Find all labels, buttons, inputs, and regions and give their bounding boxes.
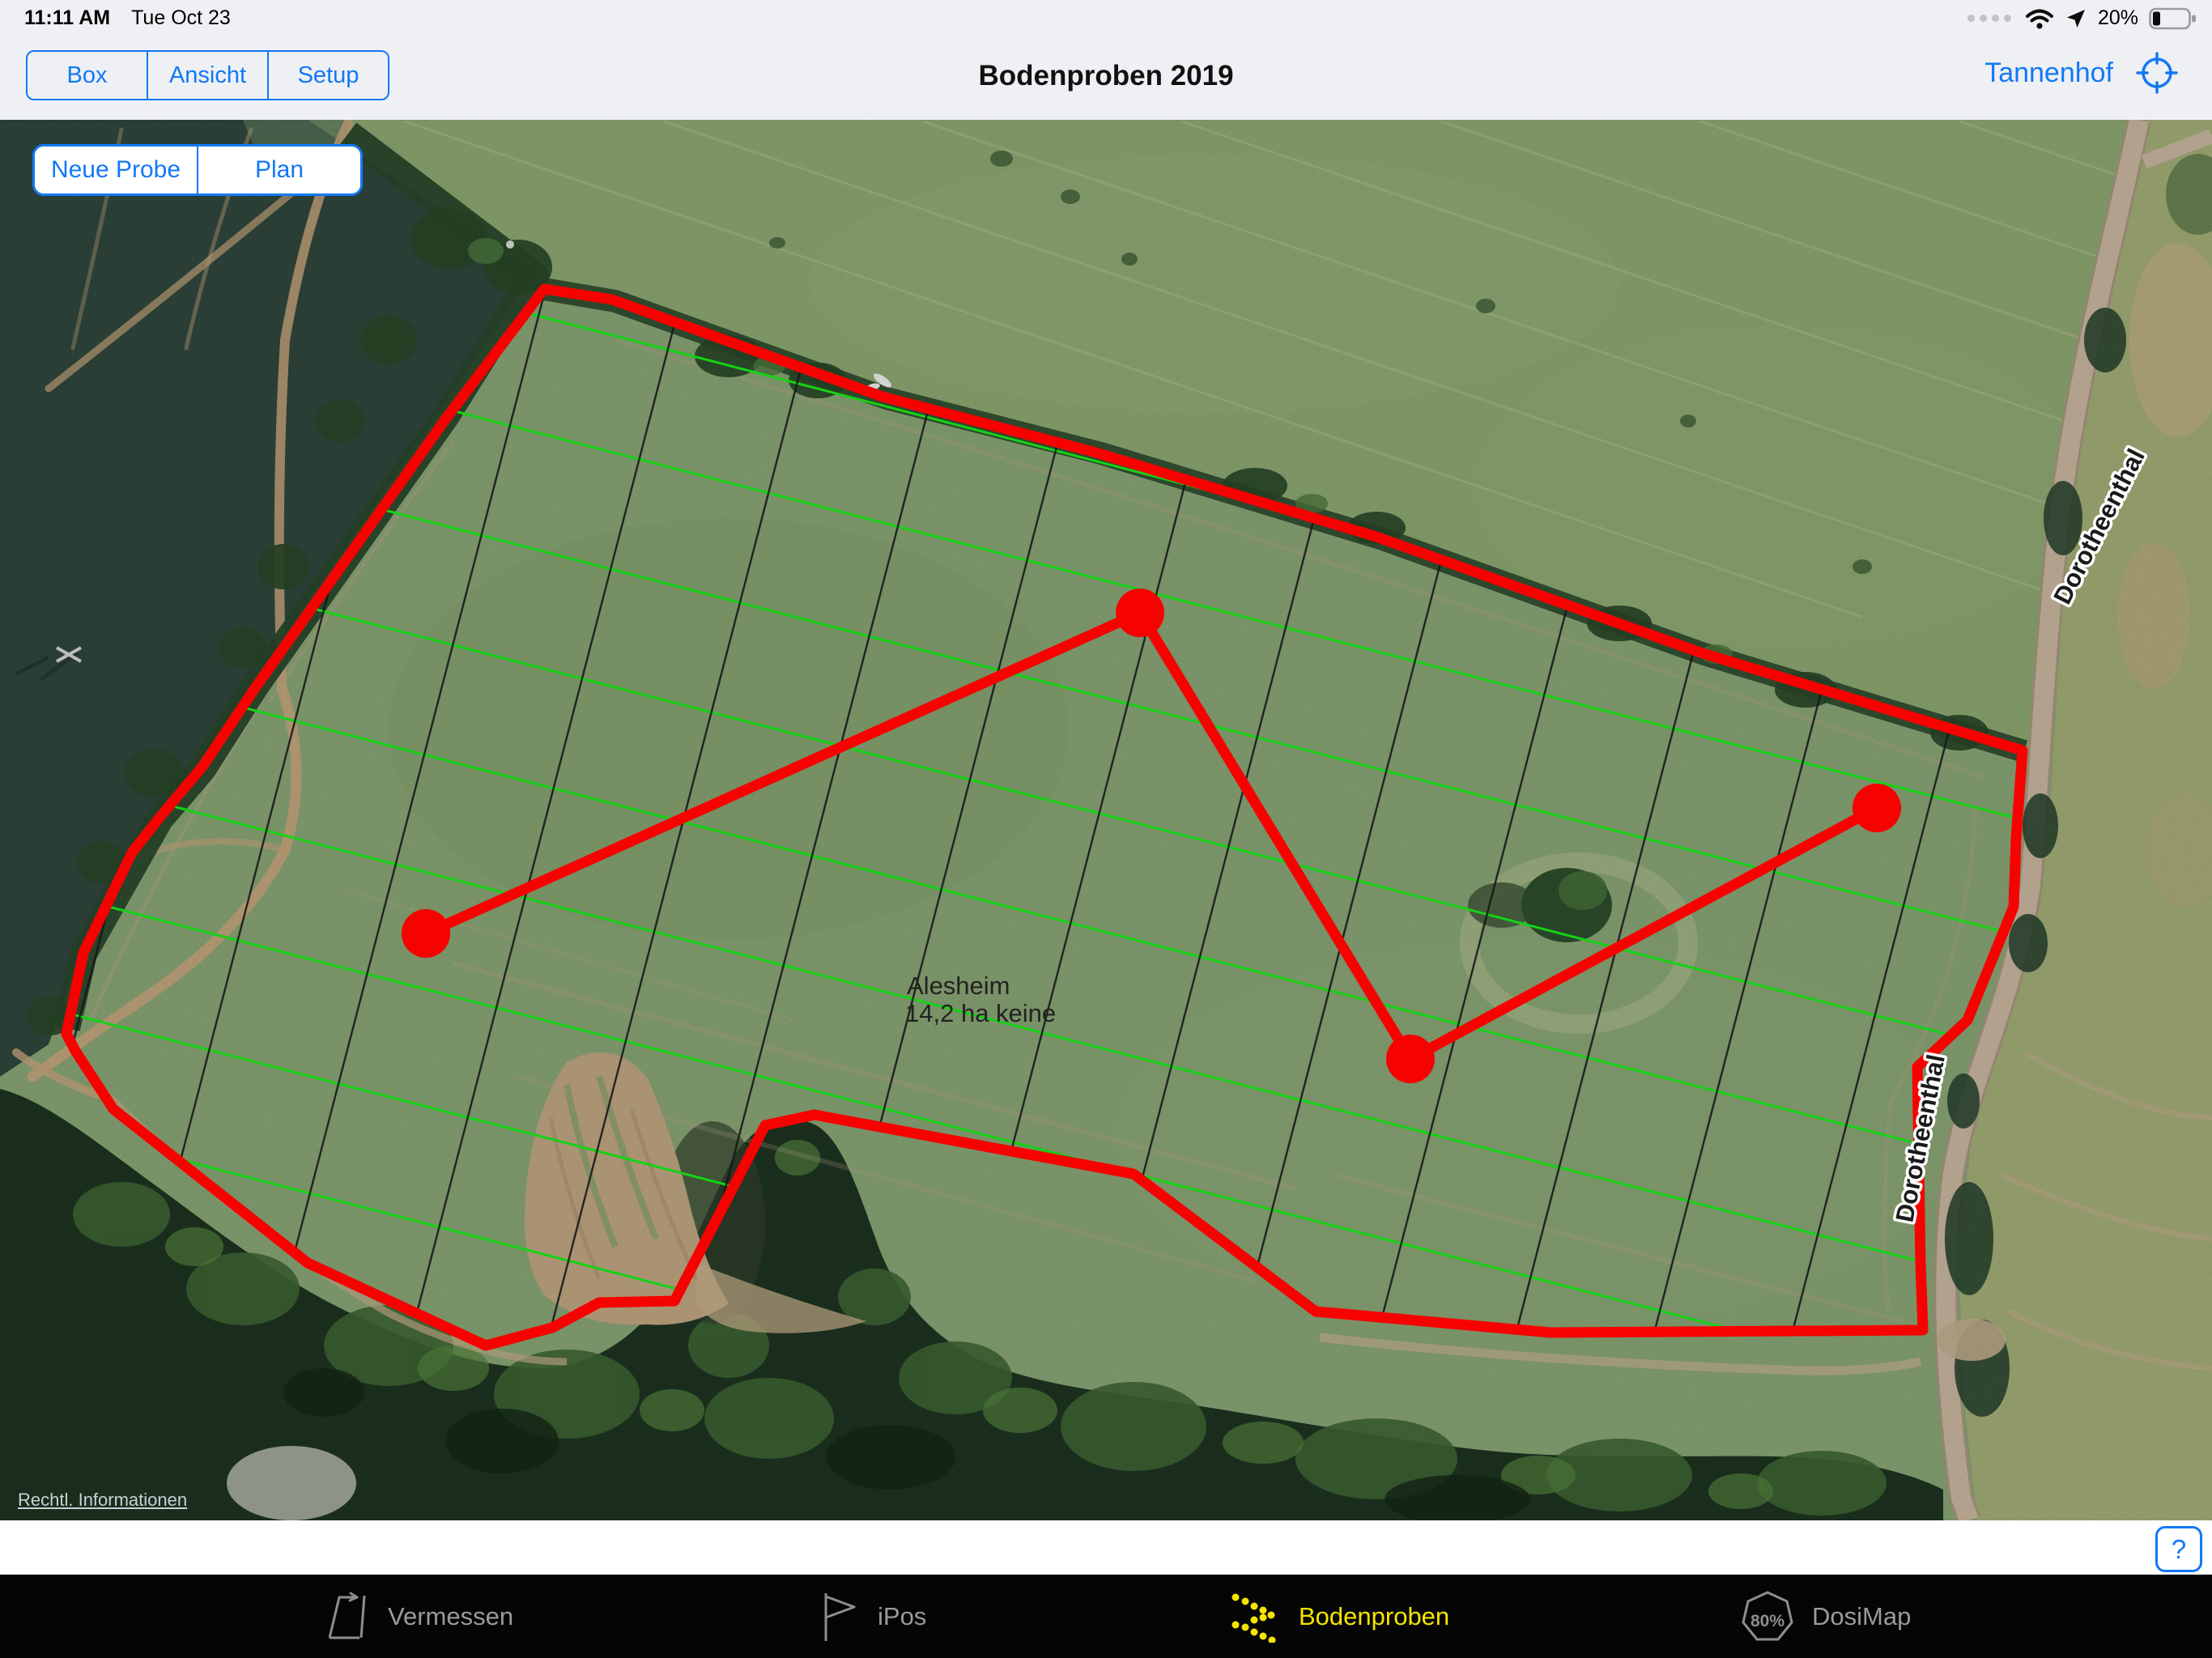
cellular-signal-icon [1967,15,2011,22]
crosshair-icon [2134,50,2180,96]
field-label-name: Alesheim [907,971,1010,1000]
header-segmented-control: Box Ansicht Setup [26,50,389,100]
measure-parallelogram-icon [321,1591,370,1643]
locate-me-button[interactable] [2134,50,2180,96]
setup-button[interactable]: Setup [267,52,388,99]
satellite-basemap: Alesheim 14,2 ha keine Dorotheenthal Dor… [0,120,2212,1520]
header-bar: 11:11 AM Tue Oct 23 20% Box Ansicht S [0,0,2212,120]
tab-label: Bodenproben [1299,1602,1449,1631]
header-right-group: Tannenhof [1984,49,2180,97]
bottom-strip [0,1520,2212,1575]
dosimap-heptagon-icon: 80% [1741,1590,1794,1643]
sample-point-marker[interactable] [1116,589,1164,637]
tab-bar: Vermessen iPos Bodenprobe [0,1575,2212,1658]
field-label-area: 14,2 ha keine [905,999,1056,1027]
battery-icon [2149,7,2197,30]
neue-probe-button[interactable]: Neue Probe [35,147,197,193]
soil-sample-dots-icon [1229,1591,1281,1643]
flag-icon [819,1590,860,1643]
battery-percent: 20% [2098,6,2138,30]
app-root: Alesheim 14,2 ha keine Dorotheenthal Dor… [0,0,2212,1658]
ansicht-button[interactable]: Ansicht [147,52,267,99]
sample-point-marker[interactable] [402,909,450,958]
sample-point-marker[interactable] [1853,784,1901,832]
tab-label: DosiMap [1812,1602,1911,1631]
status-date: Tue Oct 23 [131,6,231,30]
help-button[interactable]: ? [2155,1526,2202,1572]
location-arrow-icon [2065,7,2087,30]
status-bar-left: 11:11 AM Tue Oct 23 [24,6,231,30]
status-bar-right: 20% [1967,6,2197,30]
tab-label: iPos [878,1602,926,1631]
account-link[interactable]: Tannenhof [1984,57,2113,89]
map-toolbar-segment: Neue Probe Plan [32,144,363,196]
dosimap-badge: 80% [1750,1612,1784,1630]
tab-bodenproben[interactable]: Bodenproben [1229,1575,1449,1658]
box-button[interactable]: Box [28,52,147,99]
satellite-map[interactable]: Alesheim 14,2 ha keine Dorotheenthal Dor… [0,120,2212,1520]
sample-point-marker[interactable] [1386,1035,1435,1083]
plan-button[interactable]: Plan [197,147,360,193]
tab-vermessen[interactable]: Vermessen [321,1575,513,1658]
tab-ipos[interactable]: iPos [819,1575,926,1658]
wifi-icon [2025,7,2054,30]
status-time: 11:11 AM [24,6,110,30]
tab-dosimap[interactable]: 80% DosiMap [1741,1575,1911,1658]
page-title: Bodenproben 2019 [978,60,1233,92]
legal-info-link[interactable]: Rechtl. Informationen [18,1490,187,1511]
tab-label: Vermessen [388,1602,513,1631]
